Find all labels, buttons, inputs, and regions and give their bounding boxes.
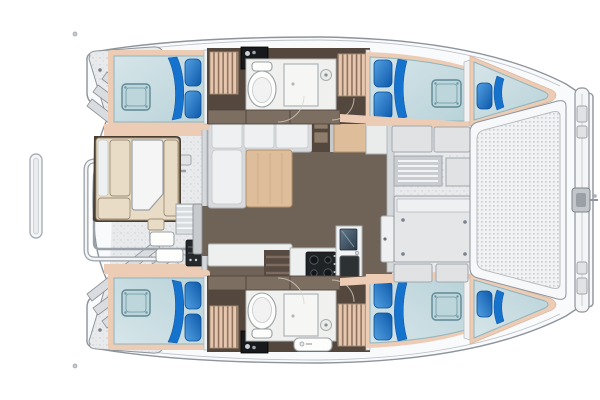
catamaran-floor-plan	[0, 0, 600, 400]
head-sink	[294, 338, 332, 351]
beam-fitting	[577, 262, 587, 274]
winch	[150, 232, 174, 246]
bench-cushion	[98, 140, 108, 196]
bench-locker	[394, 264, 432, 282]
deck-fitting	[73, 364, 77, 368]
sliding-door	[193, 204, 202, 254]
crossbeam	[572, 88, 598, 312]
bow-area	[470, 88, 598, 312]
deck-fitting	[73, 32, 77, 36]
bench-locker	[436, 264, 468, 282]
entry-step	[314, 132, 328, 143]
swim-ladder	[30, 154, 42, 238]
trampoline	[477, 112, 560, 289]
fridge	[340, 229, 357, 250]
beam-fitting	[577, 278, 587, 294]
coffee-table	[246, 150, 292, 207]
floor-plan-drawing	[0, 0, 600, 400]
bench-locker	[392, 126, 432, 152]
locker	[148, 219, 164, 230]
louvered-hatch	[394, 156, 442, 186]
beam-fitting	[577, 106, 587, 122]
salon	[193, 112, 394, 286]
forward-door	[381, 216, 394, 262]
bridle-fitting	[572, 188, 598, 212]
storage-hatch	[394, 196, 474, 262]
winch	[156, 249, 183, 262]
bench-cushion	[110, 140, 130, 196]
beam-fitting	[577, 126, 587, 138]
bench-locker	[434, 127, 470, 152]
cockpit-table	[132, 140, 163, 210]
bench-cushion	[98, 198, 130, 219]
